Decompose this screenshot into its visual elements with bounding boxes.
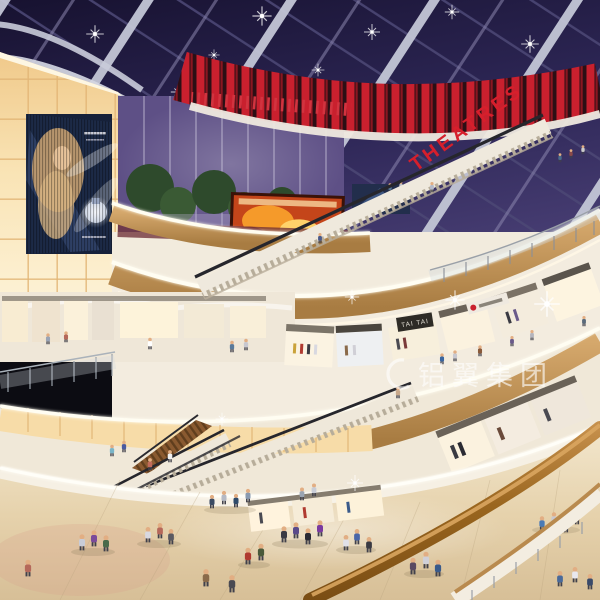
scene-canvas: THEATRES: [0, 0, 600, 600]
backlit-panel-wall: [0, 52, 123, 312]
shop-sign-band: [2, 296, 266, 301]
ad-screen: [26, 114, 123, 254]
ad-led-scanlines: [26, 114, 112, 254]
mall-atrium-rendering: THEATRES: [0, 0, 600, 600]
watermark-text: 铝翼集团: [418, 361, 554, 392]
level3-walkway-left: [0, 292, 295, 362]
